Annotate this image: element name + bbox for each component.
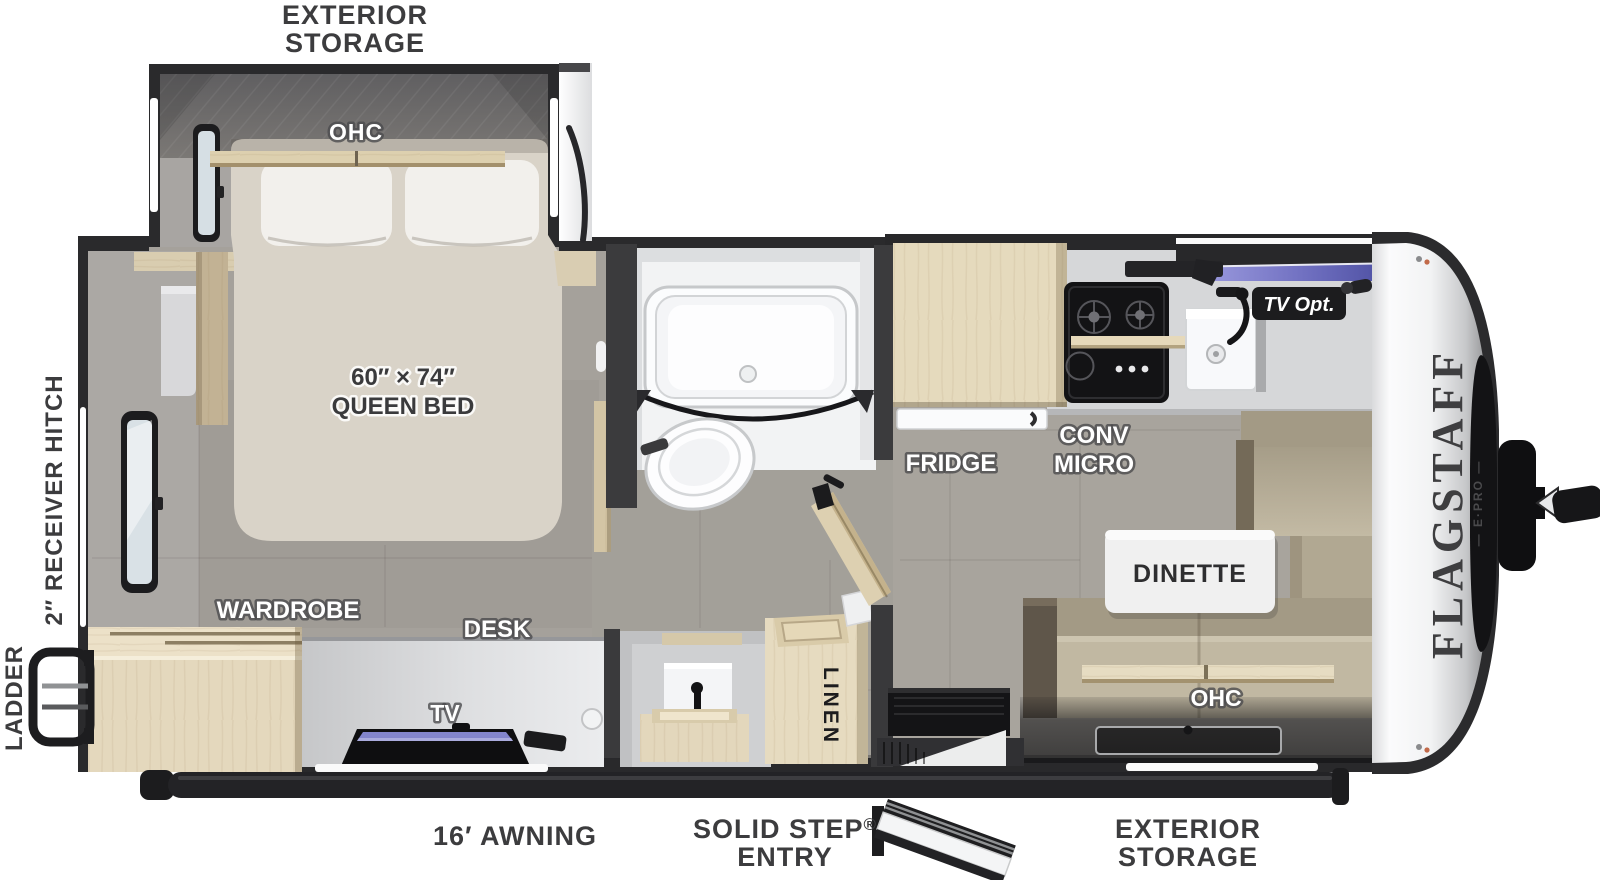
svg-text:TV Opt.: TV Opt. [1263, 294, 1334, 316]
svg-text:2″ RECEIVER HITCH: 2″ RECEIVER HITCH [41, 374, 68, 625]
svg-text:— E·PRO —: — E·PRO — [1471, 460, 1485, 547]
svg-text:OHC: OHC [1190, 685, 1241, 711]
svg-text:MICRO: MICRO [1054, 451, 1134, 478]
svg-text:EXTERIOR: EXTERIOR [282, 0, 428, 30]
svg-text:WARDROBE: WARDROBE [217, 597, 360, 624]
svg-text:SOLID STEP®: SOLID STEP® [693, 814, 877, 844]
svg-text:FRIDGE: FRIDGE [906, 450, 997, 477]
svg-text:LADDER: LADDER [1, 645, 28, 751]
svg-text:DINETTE: DINETTE [1133, 560, 1247, 588]
svg-text:STORAGE: STORAGE [285, 28, 425, 58]
svg-text:TV: TV [430, 700, 460, 726]
svg-text:CONV: CONV [1059, 422, 1128, 449]
svg-text:OHC: OHC [329, 119, 383, 145]
svg-text:QUEEN BED: QUEEN BED [332, 393, 475, 420]
svg-text:ENTRY: ENTRY [737, 842, 833, 872]
svg-text:16′ AWNING: 16′ AWNING [433, 821, 597, 851]
svg-text:DESK: DESK [464, 616, 531, 643]
svg-text:FLAGSTAFF: FLAGSTAFF [1423, 347, 1472, 659]
svg-text:LINEN: LINEN [819, 667, 842, 745]
svg-text:EXTERIOR: EXTERIOR [1115, 814, 1261, 844]
svg-text:STORAGE: STORAGE [1118, 842, 1258, 872]
svg-text:60″ × 74″: 60″ × 74″ [351, 364, 455, 391]
